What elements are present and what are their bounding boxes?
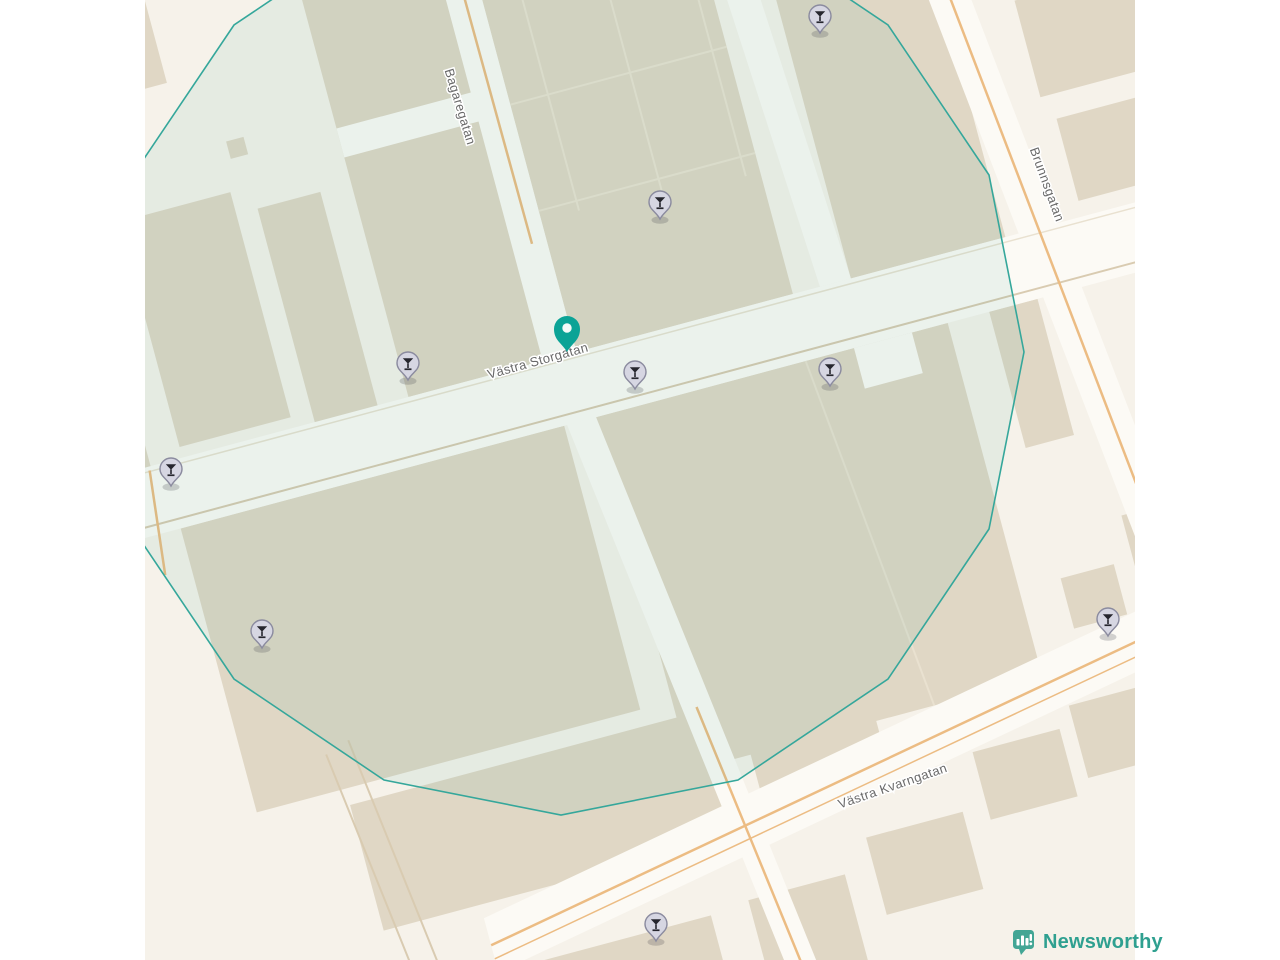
bar-marker-pin[interactable]	[397, 352, 419, 385]
bar-marker-pin[interactable]	[160, 458, 182, 491]
newsworthy-logo[interactable]: Newsworthy	[1012, 929, 1163, 956]
map-svg: Bagaregatan Västra Storgatan Brunnsgatan…	[145, 0, 1135, 960]
map-canvas[interactable]: Bagaregatan Västra Storgatan Brunnsgatan…	[145, 0, 1135, 960]
newsworthy-logo-text: Newsworthy	[1043, 931, 1163, 954]
newsworthy-logo-icon	[1012, 929, 1036, 956]
bar-marker-pin[interactable]	[819, 358, 841, 391]
bar-marker-pin[interactable]	[645, 913, 667, 946]
bar-marker-pin[interactable]	[624, 361, 646, 394]
bar-marker-pin[interactable]	[251, 620, 273, 653]
bar-marker-pin[interactable]	[649, 191, 671, 224]
bar-marker-pin[interactable]	[1097, 608, 1119, 641]
bar-marker-pin[interactable]	[809, 5, 831, 38]
